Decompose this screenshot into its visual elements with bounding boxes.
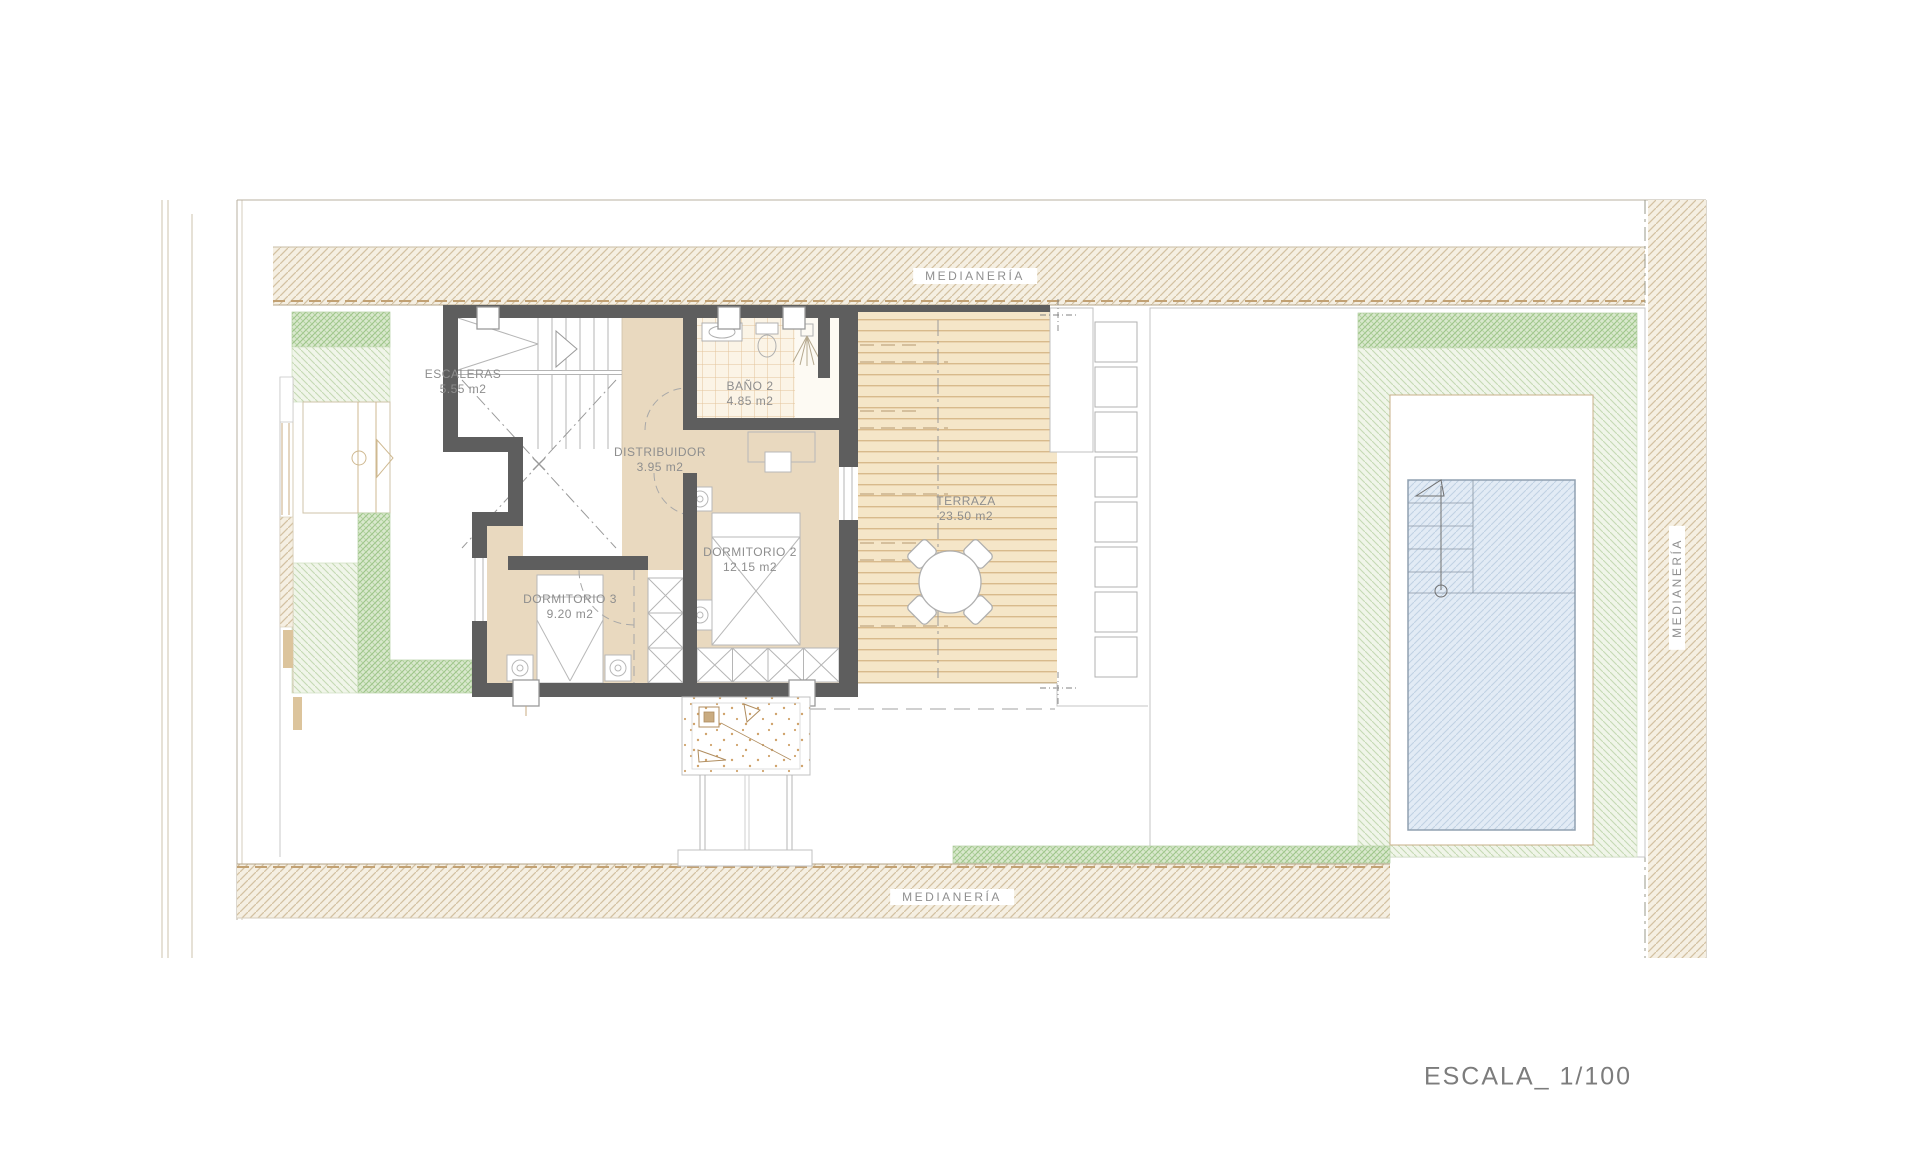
floor-plan-drawing bbox=[0, 0, 1920, 1166]
room-label-terraza: TERRAZA 23.50 m2 bbox=[936, 494, 996, 524]
scale-label: ESCALA_ 1/100 bbox=[1424, 1063, 1632, 1092]
walkway-rails bbox=[700, 775, 792, 850]
bottom-garden-strip bbox=[953, 846, 1390, 863]
room-area: 3.95 m2 bbox=[614, 460, 706, 475]
rear-patio bbox=[678, 697, 812, 866]
room-label-bano2: BAÑO 2 4.85 m2 bbox=[726, 379, 773, 409]
terrace-step-edge bbox=[1057, 683, 1148, 706]
party-wall-band-bottom bbox=[237, 864, 1390, 918]
room-name: BAÑO 2 bbox=[726, 379, 773, 394]
room-name: ESCALERAS bbox=[425, 367, 502, 382]
room-name: DORMITORIO 2 bbox=[703, 545, 797, 560]
floor-plan-canvas: MEDIANERÍA MEDIANERÍA MEDIANERÍA ESCALER… bbox=[0, 0, 1920, 1166]
pool bbox=[1408, 480, 1575, 830]
room-name: DORMITORIO 3 bbox=[523, 592, 617, 607]
room-label-dormitorio2: DORMITORIO 2 12.15 m2 bbox=[703, 545, 797, 575]
desk-chair bbox=[765, 452, 791, 472]
room-area: 5.55 m2 bbox=[425, 382, 502, 397]
nightstand bbox=[605, 655, 631, 681]
room-area: 23.50 m2 bbox=[936, 509, 996, 524]
terrace-planter-bench bbox=[1050, 308, 1093, 452]
bed bbox=[712, 513, 800, 645]
room-label-distribuidor: DISTRIBUIDOR 3.95 m2 bbox=[614, 445, 706, 475]
room-name: TERRAZA bbox=[936, 494, 996, 509]
toilet-tank bbox=[756, 323, 778, 334]
nightstand bbox=[507, 655, 533, 681]
pergola-slats bbox=[1095, 322, 1137, 677]
room-area: 12.15 m2 bbox=[703, 560, 797, 575]
room-area: 4.85 m2 bbox=[726, 394, 773, 409]
room-label-dormitorio3: DORMITORIO 3 9.20 m2 bbox=[523, 592, 617, 622]
room-name: DISTRIBUIDOR bbox=[614, 445, 706, 460]
party-wall-label-bottom: MEDIANERÍA bbox=[890, 889, 1014, 905]
party-wall-label-right: MEDIANERÍA bbox=[1669, 526, 1685, 650]
room-area: 9.20 m2 bbox=[523, 607, 617, 622]
terrace-table-and-chairs bbox=[906, 538, 994, 626]
room-label-escaleras: ESCALERAS 5.55 m2 bbox=[425, 367, 502, 397]
party-wall-label-top: MEDIANERÍA bbox=[913, 268, 1037, 284]
